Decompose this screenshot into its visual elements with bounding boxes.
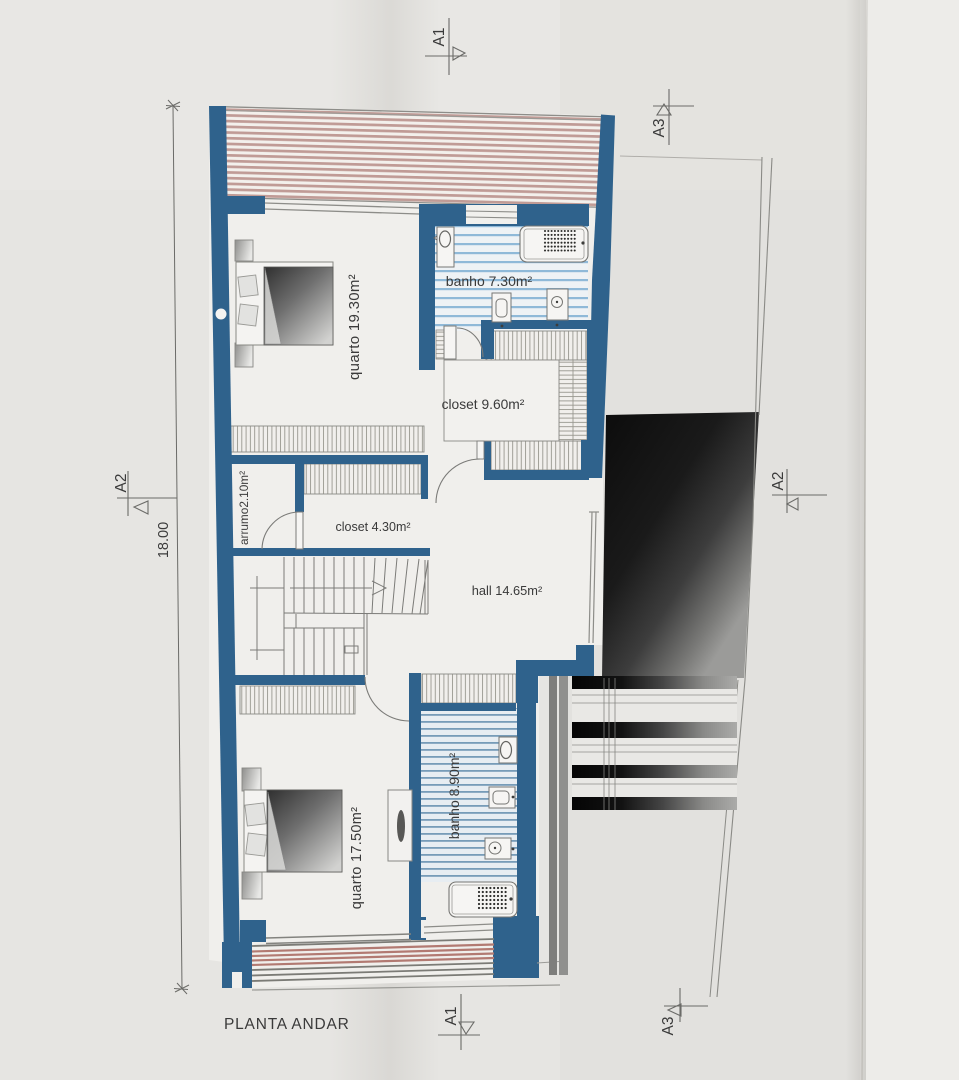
svg-text:A1: A1 [431, 28, 448, 47]
svg-text:closet 4.30m²: closet 4.30m² [335, 520, 410, 534]
svg-text:banho 7.30m²: banho 7.30m² [446, 273, 533, 289]
svg-text:PLANTA ANDAR: PLANTA ANDAR [224, 1016, 350, 1033]
svg-text:A3: A3 [651, 119, 668, 138]
svg-text:18.00: 18.00 [156, 522, 172, 558]
svg-text:A2: A2 [113, 474, 130, 493]
svg-text:A3: A3 [660, 1017, 677, 1036]
svg-text:quarto 19.30m²: quarto 19.30m² [346, 274, 363, 380]
svg-text:A2: A2 [770, 472, 787, 491]
svg-text:closet 9.60m²: closet 9.60m² [442, 397, 525, 412]
svg-text:A1: A1 [443, 1007, 460, 1026]
svg-text:banho 8.90m²: banho 8.90m² [446, 752, 462, 839]
svg-text:quarto 17.50m²: quarto 17.50m² [349, 807, 365, 910]
svg-text:hall 14.65m²: hall 14.65m² [472, 583, 543, 598]
svg-text:arrumo2.10m²: arrumo2.10m² [237, 471, 251, 545]
